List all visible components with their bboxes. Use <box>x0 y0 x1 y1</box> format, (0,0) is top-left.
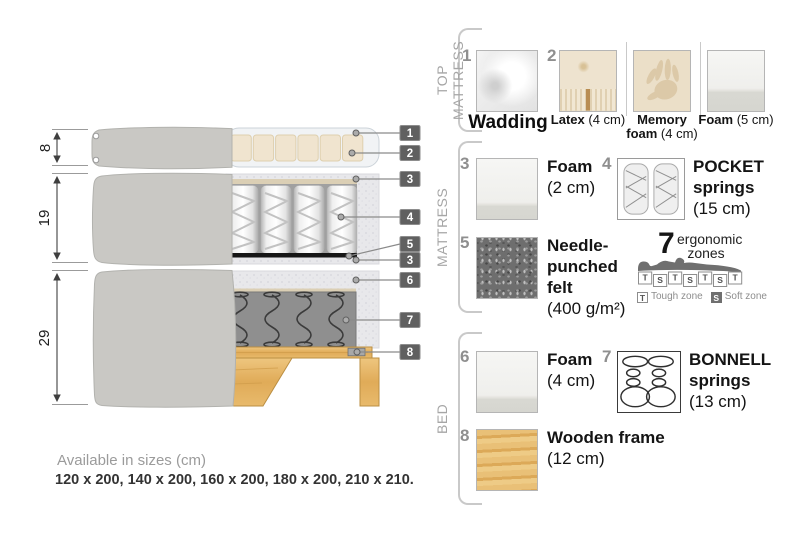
wadding-swatch <box>476 50 538 112</box>
callout-3: 3 <box>407 174 413 186</box>
foam2-swatch <box>476 158 538 220</box>
foam2-name: Foam <box>547 156 595 177</box>
latex-swatch <box>559 50 617 112</box>
top-mattress-fabric <box>92 127 232 168</box>
callout-8: 8 <box>407 347 414 359</box>
legend-number-3: 3 <box>460 154 469 174</box>
soft-zone-box: S <box>711 292 722 303</box>
tough-zone-label: Tough zone <box>651 291 703 302</box>
bonnell-springs-icon <box>618 352 679 411</box>
foam2-label: Foam (2 cm) <box>547 156 595 198</box>
tough-zone-box: T <box>637 292 648 303</box>
felt-label: Needle- punched felt (400 g/m²) <box>547 235 625 319</box>
callout-5: 5 <box>407 239 414 251</box>
pocket-springs-label: POCKET springs (15 cm) <box>693 156 764 219</box>
memory-name-line1: Memory <box>637 112 687 127</box>
pocket-size: (15 cm) <box>693 198 764 219</box>
wooden-frame-label: Wooden frame (12 cm) <box>547 427 665 469</box>
foam5-label: Foam (5 cm) <box>693 113 779 127</box>
foam5-size: (5 cm) <box>737 112 774 127</box>
callout-6: 6 <box>407 275 413 287</box>
felt-bar <box>228 253 357 258</box>
wooden-frame-name: Wooden frame <box>547 427 665 448</box>
bonnell-springs-image <box>617 351 681 413</box>
pocket-name-line1: POCKET <box>693 156 764 177</box>
zone-s3: S <box>717 275 723 285</box>
zone-s2: S <box>687 275 693 285</box>
callout-4: 4 <box>407 212 414 224</box>
wooden-frame-swatch <box>476 429 538 491</box>
wooden-frame-size: (12 cm) <box>547 448 665 469</box>
callout-1: 1 <box>407 128 414 140</box>
section-label-top-mattress: TOP MATTRESS <box>434 28 452 132</box>
dim-top-mattress: 8 <box>37 144 54 152</box>
felt-name-line3: felt <box>547 277 625 298</box>
latex-name: Latex <box>551 112 585 127</box>
felt-name-line2: punched <box>547 256 625 277</box>
memory-name-line2: foam <box>626 126 657 141</box>
section-label-bed: BED <box>434 332 452 505</box>
callout-3b: 3 <box>407 255 413 267</box>
legend-number-2: 2 <box>547 46 556 66</box>
zone-t3: T <box>702 273 708 283</box>
zone-t4: T <box>732 273 738 283</box>
memory-size: (4 cm) <box>661 126 698 141</box>
legend-number-5: 5 <box>460 233 469 253</box>
bed-fabric <box>93 269 235 407</box>
legend-number-6: 6 <box>460 347 469 367</box>
bonnell-size: (13 cm) <box>689 391 771 412</box>
wooden-leg-right <box>360 358 379 406</box>
zone-s1: S <box>657 275 663 285</box>
mattress-fabric <box>93 173 232 265</box>
bed-base-layer <box>93 269 379 407</box>
foam4-size: (4 cm) <box>547 370 595 391</box>
zone-t2: T <box>672 273 678 283</box>
separator-1 <box>626 42 627 116</box>
legend-number-7: 7 <box>602 347 611 367</box>
zone-t1: T <box>642 273 648 283</box>
mattress-layer <box>93 173 379 265</box>
foam2-size: (2 cm) <box>547 177 595 198</box>
felt-swatch <box>476 237 538 299</box>
pocket-name-line2: springs <box>693 177 764 198</box>
dim-mattress: 19 <box>36 210 53 227</box>
ergonomic-zones-graphic: T S T S T S T <box>637 252 743 288</box>
section-label-mattress: MATTRESS <box>434 141 452 313</box>
sleeper-silhouette <box>638 258 741 272</box>
separator-2 <box>700 42 701 116</box>
wooden-leg-left <box>228 358 292 406</box>
legend-number-4: 4 <box>602 154 611 174</box>
foam5-name: Foam <box>698 112 733 127</box>
felt-size: (400 g/m²) <box>547 298 625 319</box>
available-sizes-title: Available in sizes (cm) <box>57 452 206 469</box>
callout-2: 2 <box>407 148 413 160</box>
foam4-swatch <box>476 351 538 413</box>
pocket-springs-image <box>617 158 685 220</box>
handprint-icon <box>634 51 690 111</box>
top-mattress-layer <box>92 127 379 168</box>
dim-bed: 29 <box>36 330 53 347</box>
foam4-name: Foam <box>547 349 595 370</box>
available-sizes-values: 120 x 200, 140 x 200, 160 x 200, 180 x 2… <box>55 472 414 488</box>
bonnell-name-line1: BONNELL <box>689 349 771 370</box>
pocket-springs-icon <box>618 159 684 219</box>
zones-legend: TTough zoneSSoft zone <box>637 291 767 303</box>
foam4-label: Foam (4 cm) <box>547 349 595 391</box>
felt-name-line1: Needle- <box>547 235 625 256</box>
legend-number-8: 8 <box>460 426 469 446</box>
bonnell-name-line2: springs <box>689 370 771 391</box>
legend-number-1: 1 <box>462 46 471 66</box>
memory-foam-swatch <box>633 50 691 112</box>
soft-zone-label: Soft zone <box>725 291 767 302</box>
foam5-swatch <box>707 50 765 112</box>
callout-7: 7 <box>407 315 413 327</box>
bonnell-springs-label: BONNELL springs (13 cm) <box>689 349 771 412</box>
